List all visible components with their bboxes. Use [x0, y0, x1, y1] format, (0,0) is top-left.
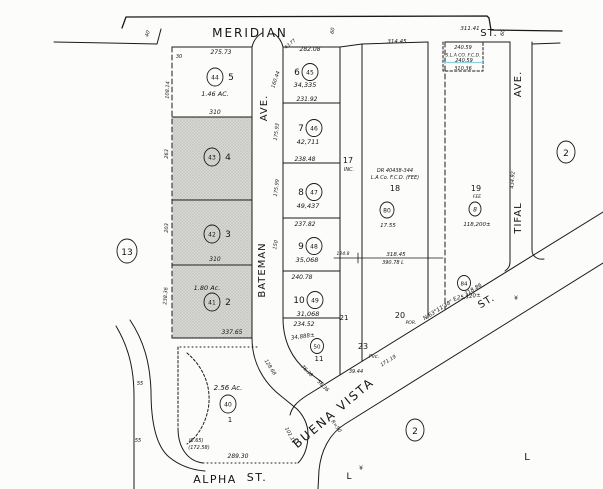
dim-meridian-east: 311.41: [460, 26, 479, 32]
lot9-parcel-number: 48: [310, 244, 318, 251]
lot3-number: 3: [225, 230, 231, 240]
lot6-number: 6: [294, 68, 300, 78]
dim-lot6-top: 282.08: [300, 46, 321, 53]
lot4-number: 4: [225, 153, 231, 163]
dim-lot9-west: 150: [272, 240, 280, 250]
width-meridian-60a: 60: [500, 29, 507, 36]
dim-tie-1248: 124.8: [337, 251, 350, 257]
dim-tifal-station: 434.92: [509, 171, 516, 189]
dim-lot2-west: 238.36: [162, 287, 169, 305]
section-mark-a: ¥: [359, 465, 363, 472]
dim-3944: 39.44: [349, 369, 363, 375]
street-label-alpha: ALPHA: [193, 473, 237, 486]
lot1-area: 2.56 Ac.: [214, 384, 243, 392]
sheet-ref-bottom: 2: [412, 427, 418, 437]
lot9-number: 9: [298, 242, 304, 252]
width-left-street-55a: 55: [137, 381, 143, 387]
width-meridian-60b: 60: [330, 27, 337, 34]
lot19-parcel-number: 8: [473, 207, 477, 214]
dim-lot11-top: 234.52: [294, 321, 315, 328]
dim-curve-radius: R=50: [329, 419, 342, 434]
lot20-parcel-number: 84: [461, 282, 468, 288]
assessor-parcel-map-page: MERIDIAN ST. AVE. BATEMAN TIFAL AVE. ALP…: [0, 0, 603, 489]
lot10-number: 10: [293, 296, 305, 306]
northeast-block-top-edge: [532, 43, 560, 44]
lot5-number: 5: [228, 73, 234, 83]
lot7-parcel-number: 46: [310, 126, 318, 133]
lot6-parcel-number: 45: [306, 70, 314, 77]
lot7-number: 7: [298, 124, 304, 134]
lot1-interior-dashed-arc: [187, 353, 209, 444]
section-mark-b: ¥: [514, 295, 518, 302]
dim-lot6-west: 160.44: [270, 70, 281, 88]
dim-lot9-top: 237.82: [295, 221, 316, 228]
lot18-deed-ref: DR 40438-344: [377, 168, 413, 174]
width-meridian-40: 40: [144, 30, 151, 38]
lot10-parcel-number: 49: [311, 298, 319, 305]
lot8-parcel-number: 47: [310, 190, 318, 197]
lot20-number: 20: [395, 311, 405, 320]
width-left-street-55b: 55: [135, 438, 141, 444]
lot5-parcel-number: 44: [211, 75, 219, 82]
letter-mark-b: L: [346, 472, 351, 482]
dim-lot3-bottom: 310: [209, 256, 221, 263]
lot18-north-boundary: [340, 42, 428, 47]
dim-bv-17119: 171.19: [379, 354, 397, 368]
fcd-dim-top: 240.59: [454, 45, 472, 51]
lot17-sublabel: INC.: [344, 167, 354, 173]
dim-bateman-curve-12868: 128.68: [263, 358, 277, 376]
lot2-number: 2: [225, 298, 231, 308]
dim-lot3-west: 203: [164, 223, 170, 233]
lot20-sublabel: POR.: [406, 320, 417, 326]
lot1-parcel-number: 40: [224, 402, 232, 409]
lot4-parcel-number: 43: [208, 155, 216, 162]
lot8-area: 49,437: [297, 202, 321, 210]
dim-lot6-bottom: 231.92: [297, 96, 318, 103]
fcd-dim-mid: 240.59: [455, 58, 473, 64]
lot11-number: 11: [315, 355, 324, 363]
lot11-parcel-number: 50: [314, 345, 321, 351]
dim-tie-39078: 390.78 L: [382, 260, 404, 266]
lot1-number: 1: [228, 416, 232, 424]
street-label-tifal: TIFAL: [513, 202, 524, 234]
lot23-number: 23: [358, 342, 368, 351]
dim-lot10-top: 240.78: [292, 274, 313, 281]
dim-bateman-curve-5636: 56.36: [316, 379, 330, 393]
street-label-meridian-st: ST.: [480, 28, 497, 39]
sheet-ref-right: 2: [563, 149, 569, 159]
sheet-ref-left: 13: [121, 248, 132, 258]
dim-lot8-west: 175.99: [273, 179, 281, 197]
buena-vista-northwest-edge: [290, 212, 603, 415]
lot2-parcel-number: 41: [208, 300, 216, 307]
dim-lot18-top: 314.45: [387, 39, 407, 45]
fcd-dim-bottom: 310.36: [454, 66, 472, 72]
dim-lot4-west: 263: [164, 149, 170, 159]
dim-lot1-corner-665: (6.65): [188, 438, 203, 444]
lot17-number: 17: [343, 156, 353, 165]
street-label-alpha-st: ST.: [247, 471, 267, 484]
lot7-area: 42,711: [297, 138, 320, 146]
dim-lot5-west: 108.14: [165, 81, 172, 99]
street-label-tifal-ave: AVE.: [513, 71, 524, 98]
lot19-number: 19: [471, 184, 481, 193]
lot18-area: 17.55: [380, 223, 396, 229]
tifal-west-edge: [505, 42, 510, 271]
dim-lot1-corner-17258: (172.58): [188, 445, 209, 451]
lot18-parcel-number: 80: [383, 208, 391, 215]
lot21-number: 21: [340, 314, 349, 322]
dim-tie-31845: 318.45: [386, 252, 406, 258]
lot2-area: 1.80 Ac.: [194, 284, 221, 292]
street-label-buena-vista: BUENA VISTA: [290, 375, 377, 451]
lot18-number: 18: [390, 184, 400, 193]
parcel-map: MERIDIAN ST. AVE. BATEMAN TIFAL AVE. ALP…: [0, 0, 603, 489]
dim-lot1-bottom: 289.30: [228, 453, 249, 460]
dim-lot5-top: 275.73: [211, 49, 232, 56]
lot8-number: 8: [298, 188, 304, 198]
lot19-sublabel: FEE: [473, 194, 481, 200]
dim-lot2-bottom: 337.65: [222, 329, 243, 336]
street-label-bateman-ave: AVE.: [259, 95, 270, 122]
width-corner-30: 30: [176, 54, 182, 60]
lot10-area: 31,068: [297, 310, 320, 318]
tifal-east-edge: [532, 42, 544, 259]
left-street-west-curve: [116, 326, 134, 489]
lot3-parcel-number: 42: [208, 232, 216, 239]
dim-bateman-curve-7638: 76.38: [300, 364, 314, 378]
letter-mark-a: L: [524, 452, 530, 463]
lot19-area: 118,200±: [463, 222, 491, 228]
dim-lot7-bottom: 238.48: [295, 156, 316, 163]
lot6-area: 34,335: [294, 81, 317, 89]
lot5-area: 1.46 AC.: [201, 90, 229, 98]
dim-lot7-west: 175.93: [273, 123, 281, 141]
lot18-owner: L.A Co. F.C.D. (FEE): [371, 175, 419, 181]
dim-lot5-bottom: 310: [209, 109, 221, 116]
lot11-area: 34,888±: [291, 332, 316, 341]
lot23-sublabel: Pvc.: [369, 354, 379, 360]
street-label-meridian: MERIDIAN: [212, 26, 288, 40]
lot9-area: 35,068: [296, 256, 319, 264]
street-label-bateman: BATEMAN: [257, 242, 268, 297]
